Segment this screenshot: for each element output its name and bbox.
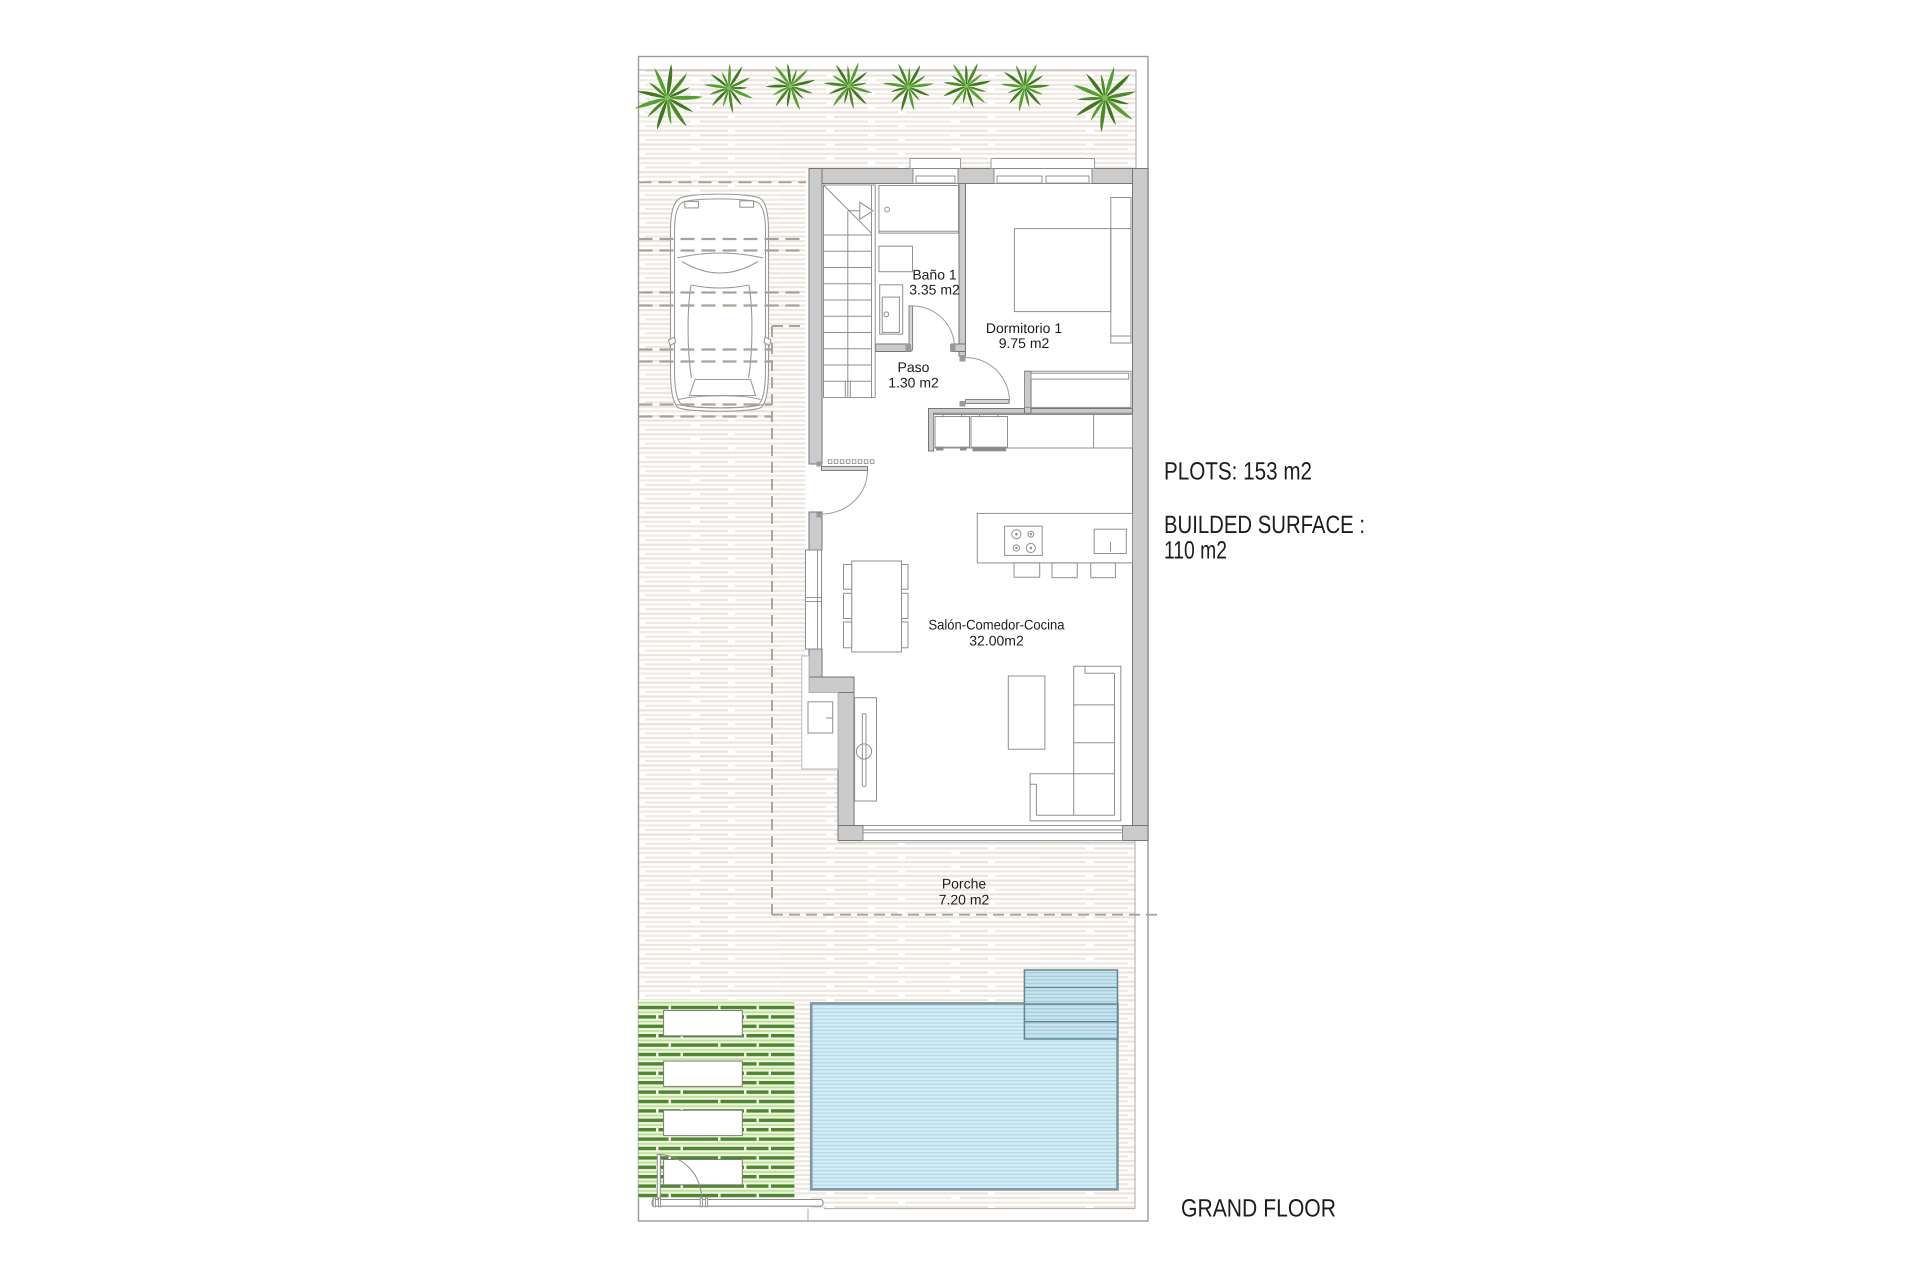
svg-text:PLOTS: 153 m2: PLOTS: 153 m2 [1164, 458, 1312, 486]
svg-text:BUILDED SURFACE :: BUILDED SURFACE : [1164, 511, 1365, 539]
svg-text:32.00m2: 32.00m2 [969, 633, 1024, 649]
svg-text:9.75 m2: 9.75 m2 [999, 335, 1050, 351]
svg-text:110 m2: 110 m2 [1164, 537, 1227, 565]
svg-text:Salón-Comedor-Cocina: Salón-Comedor-Cocina [929, 617, 1065, 633]
svg-text:7.20 m2: 7.20 m2 [939, 892, 990, 908]
svg-text:Dormitorio 1: Dormitorio 1 [986, 320, 1062, 336]
svg-text:3.35 m2: 3.35 m2 [909, 282, 960, 298]
svg-text:GRAND FLOOR: GRAND FLOOR [1181, 1195, 1336, 1223]
svg-text:Paso: Paso [898, 359, 930, 375]
svg-text:Porche: Porche [942, 876, 987, 892]
svg-text:Baño 1: Baño 1 [912, 267, 957, 283]
svg-text:1.30 m2: 1.30 m2 [888, 375, 939, 391]
